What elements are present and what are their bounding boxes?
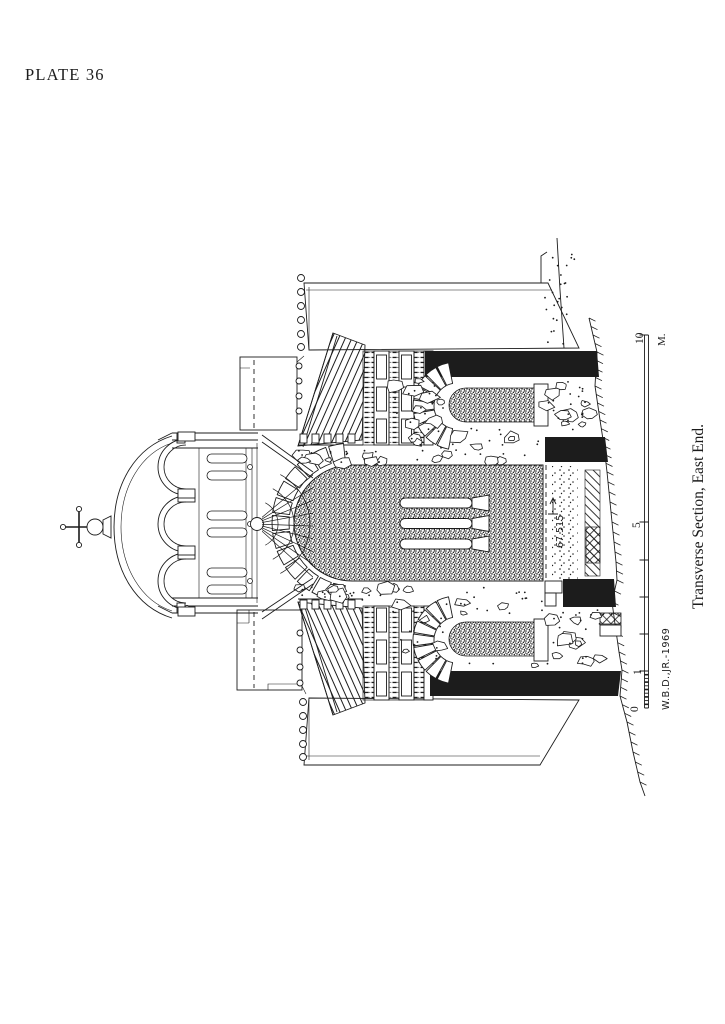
ground-tick	[609, 492, 616, 495]
stipple-dot	[431, 403, 433, 405]
ground-tick	[617, 580, 624, 583]
stipple-dot	[518, 591, 520, 593]
stipple-dot	[500, 434, 502, 436]
stipple-dot	[409, 630, 411, 632]
rubble-stone	[577, 656, 594, 666]
stipple-dot	[311, 452, 313, 454]
drum-window	[207, 528, 247, 537]
drum-cornice-top	[158, 433, 258, 448]
stipple-dot	[311, 586, 313, 588]
scale-label-1: 1	[632, 669, 644, 675]
step-stone	[545, 593, 556, 606]
stipple-dot	[499, 429, 501, 431]
plate-drawing: 10 5 1 0 M. 67.515 W.B.D.,JR.-1969 Trans…	[0, 0, 725, 1024]
stipple-dot	[345, 451, 347, 453]
stipple-dot	[473, 596, 475, 598]
scale-label-0: 0	[629, 706, 641, 712]
rubble-stone	[552, 652, 563, 658]
stipple-dot	[351, 599, 353, 601]
stipple-dot	[547, 341, 549, 343]
stipple-dot	[570, 257, 572, 259]
stipple-dot	[435, 658, 437, 660]
stipple-dot	[567, 413, 569, 415]
stipple-dot	[580, 620, 582, 622]
scale-label-10: 10	[634, 332, 646, 344]
rubble-stone	[432, 455, 443, 463]
rubble-stone	[442, 451, 453, 459]
tile-end-row-north	[298, 275, 305, 351]
stipple-dot	[582, 390, 584, 392]
rubble-stone	[485, 456, 499, 465]
stipple-dot	[436, 655, 438, 657]
side-block-south	[237, 610, 306, 694]
stipple-dot	[558, 298, 560, 300]
stipple-dot	[548, 402, 550, 404]
stipple-dot	[322, 591, 324, 593]
stipple-dot	[476, 429, 478, 431]
ground-tick	[599, 412, 606, 415]
plate-label: PLATE 36	[25, 65, 105, 84]
dome-outline	[114, 436, 172, 618]
stipple-dot	[393, 658, 395, 660]
stipple-dot	[602, 614, 604, 616]
wall-section-north	[425, 351, 599, 377]
stipple-dot	[564, 283, 566, 285]
stipple-dot	[536, 443, 538, 445]
stipple-dot	[553, 330, 555, 332]
stipple-dot	[476, 608, 478, 610]
stipple-dot	[553, 318, 555, 320]
stipple-dot	[569, 643, 571, 645]
stipple-dot	[417, 641, 419, 643]
stipple-dot	[398, 588, 400, 590]
stipple-dot	[436, 647, 438, 649]
step-stone	[545, 581, 562, 593]
ground-tick	[619, 652, 626, 655]
ground-tick	[621, 679, 628, 682]
aisle-roof-north	[298, 333, 365, 447]
stipple-dot	[553, 410, 555, 412]
stipple-dot	[394, 392, 396, 394]
impost-block	[178, 607, 195, 616]
impost-block	[178, 489, 195, 498]
stipple-dot	[525, 597, 527, 599]
crossing-finial-orb	[251, 518, 264, 531]
ground-tick	[618, 643, 625, 646]
rubble-stone	[437, 399, 445, 405]
aisle-window-south	[413, 597, 548, 683]
stipple-dot	[428, 428, 430, 430]
stipple-dot	[396, 601, 398, 603]
stipple-dot	[524, 592, 526, 594]
stipple-dot	[552, 292, 554, 294]
stipple-dot	[575, 614, 577, 616]
stipple-dot	[339, 595, 341, 597]
stipple-dot	[578, 396, 580, 398]
ground-tick	[615, 552, 622, 555]
stipple-dot	[567, 381, 569, 383]
stipple-dot	[302, 589, 304, 591]
finial-rod	[541, 252, 547, 283]
drum-window	[207, 585, 247, 594]
stipple-dot	[418, 658, 420, 660]
stipple-dot	[346, 453, 348, 455]
stipple-dot	[364, 450, 366, 452]
stipple-dot	[363, 459, 365, 461]
rubble-stone	[470, 444, 482, 450]
rubble-stone	[461, 611, 468, 615]
rubble-stone	[498, 603, 509, 610]
rubble-stone	[450, 431, 468, 443]
impost-block	[178, 546, 195, 555]
stipple-dot	[416, 459, 418, 461]
ground-tick	[613, 532, 620, 535]
stipple-dot	[452, 443, 454, 445]
cut-stone-block	[600, 625, 621, 636]
stipple-dot	[349, 593, 351, 595]
window-fill	[449, 622, 534, 656]
stipple-dot	[560, 616, 562, 618]
rubble-stone	[403, 586, 413, 593]
stipple-dot	[470, 428, 472, 430]
stipple-dot	[464, 604, 466, 606]
stipple-dot	[408, 393, 410, 395]
stipple-dot	[561, 307, 563, 309]
stipple-dot	[569, 393, 571, 395]
ground-tick	[617, 571, 624, 574]
stipple-dot	[553, 642, 555, 644]
stipple-dot	[566, 313, 568, 315]
stipple-dot	[551, 331, 553, 333]
stipple-dot	[557, 265, 559, 267]
stipple-dot	[394, 398, 396, 400]
stipple-dot	[524, 454, 526, 456]
signature: W.B.D.,JR.-1969	[661, 628, 672, 710]
scale-unit-label: M.	[656, 333, 668, 346]
drum-window	[207, 471, 247, 480]
stipple-dot	[553, 618, 555, 620]
impost-block	[178, 432, 195, 441]
caption: Transverse Section, East End.	[690, 424, 707, 609]
stipple-dot	[420, 407, 422, 409]
colonnette-base	[248, 579, 253, 584]
elevation-label: 67.515	[555, 515, 566, 548]
drum-arch	[158, 553, 186, 609]
stipple-dot	[298, 450, 300, 452]
stipple-dot	[557, 301, 559, 303]
stipple-dot	[301, 594, 303, 596]
stylobate-south	[563, 579, 616, 607]
stipple-dot	[434, 385, 436, 387]
ground-tick	[606, 463, 613, 466]
rubble-stone	[377, 581, 395, 594]
drum-arch-inner	[164, 502, 186, 546]
plate-page: 10 5 1 0 M. 67.515 W.B.D.,JR.-1969 Trans…	[0, 0, 725, 1024]
stipple-dot	[362, 599, 364, 601]
stipple-dot	[353, 592, 355, 594]
stipple-dot	[597, 609, 599, 611]
rubble-stone	[531, 663, 538, 667]
stipple-dot	[413, 630, 415, 632]
stipple-dot	[435, 395, 437, 397]
ground-tick	[595, 386, 602, 389]
stipple-dot	[446, 603, 448, 605]
ground-tick	[621, 687, 628, 690]
stipple-dot	[611, 613, 613, 615]
stipple-dot	[502, 444, 504, 446]
stipple-dot	[582, 657, 584, 659]
stipple-dot	[562, 343, 564, 345]
stipple-dot	[400, 639, 402, 641]
stipple-dot	[413, 644, 415, 646]
stipple-dot	[483, 587, 485, 589]
stipple-dot	[552, 257, 554, 259]
stipple-dot	[419, 444, 421, 446]
ground-tick	[601, 429, 608, 432]
stipple-dot	[375, 451, 377, 453]
stipple-dot	[547, 663, 549, 665]
stipple-dot	[582, 662, 584, 664]
stipple-dot	[414, 390, 416, 392]
ground-tick	[616, 562, 623, 565]
ground-tick	[614, 542, 621, 545]
stipple-dot	[570, 403, 572, 405]
rubble-stone	[362, 588, 372, 594]
stipple-dot	[572, 429, 574, 431]
drum-arch	[158, 496, 186, 552]
stipple-dot	[424, 413, 426, 415]
ground-tick	[596, 378, 603, 381]
ground-tick	[615, 591, 622, 594]
stipple-dot	[566, 296, 568, 298]
ground-tick	[596, 395, 603, 398]
ground-tick	[607, 472, 614, 475]
stipple-dot	[351, 595, 353, 597]
rubble-stone	[555, 411, 572, 420]
stipple-dot	[429, 393, 431, 395]
apse-windows	[400, 495, 489, 552]
stipple-dot	[330, 452, 332, 454]
stipple-dot	[567, 419, 569, 421]
dome-cross-icon	[60, 506, 111, 547]
stipple-dot	[466, 592, 468, 594]
rubble-stone	[556, 382, 566, 389]
stipple-dot	[553, 304, 555, 306]
finial-orb	[87, 519, 103, 535]
stipple-dot	[549, 279, 551, 281]
stipple-dot	[582, 388, 584, 390]
stipple-dot	[480, 453, 482, 455]
stipple-dot	[522, 598, 524, 600]
stipple-dot	[537, 440, 539, 442]
ground-tick	[597, 352, 604, 355]
ground-tick	[598, 403, 605, 406]
rubble-stone	[593, 655, 607, 663]
stipple-dot	[442, 631, 444, 633]
stipple-dot	[585, 656, 587, 658]
stipple-dot	[599, 623, 601, 625]
stipple-dot	[492, 663, 494, 665]
rubble-stone	[578, 422, 586, 427]
rubble-stone	[544, 614, 559, 626]
scale-subdivisions	[645, 675, 649, 708]
stipple-dot	[440, 618, 442, 620]
stipple-dot	[380, 595, 382, 597]
stipple-dot	[301, 454, 303, 456]
stipple-dot	[559, 627, 561, 629]
stipple-dot	[546, 309, 548, 311]
stipple-dot	[582, 413, 584, 415]
drum-arcade	[158, 432, 253, 616]
ground-tick	[610, 502, 617, 505]
stipple-dot	[516, 592, 518, 594]
stipple-dot	[439, 626, 441, 628]
stipple-dot	[579, 612, 581, 614]
stipple-dot	[324, 593, 326, 595]
stipple-dot	[585, 628, 587, 630]
stipple-dot	[503, 453, 505, 455]
aisle-roof-south	[298, 601, 365, 715]
stipple-dot	[590, 614, 592, 616]
stipple-dot	[489, 440, 491, 442]
stipple-dot	[412, 610, 414, 612]
stipple-dot	[579, 387, 581, 389]
stipple-dot	[422, 450, 424, 452]
stipple-dot	[541, 601, 543, 603]
stipple-dot	[571, 254, 573, 256]
stipple-dot	[464, 453, 466, 455]
window-fill	[449, 388, 534, 422]
stipple-dot	[541, 609, 543, 611]
stipple-dot	[566, 265, 568, 267]
stipple-dot	[556, 319, 558, 321]
ground-tick	[608, 482, 615, 485]
stipple-dot	[562, 612, 564, 614]
stipple-dot	[378, 461, 380, 463]
stipple-dot	[438, 430, 440, 432]
stipple-dot	[560, 274, 562, 276]
dome-group	[60, 432, 263, 618]
ground-tick	[611, 512, 618, 515]
side-block-north	[240, 356, 304, 430]
colonnette-base	[248, 465, 253, 470]
drum-arch-inner	[164, 559, 186, 603]
stipple-dot	[581, 416, 583, 418]
stylobate-north	[545, 437, 608, 462]
stipple-dot	[509, 612, 511, 614]
stipple-dot	[431, 643, 433, 645]
drum-window	[207, 454, 247, 463]
stipple-dot	[584, 401, 586, 403]
stipple-dot	[440, 447, 442, 449]
rubble-stone	[581, 401, 590, 408]
stipple-dot	[486, 610, 488, 612]
drum-window	[207, 511, 247, 520]
ground-tick	[622, 670, 629, 673]
ground-tick	[612, 522, 619, 525]
stipple-dot	[392, 611, 394, 613]
stipple-dot	[410, 421, 412, 423]
stipple-dot	[435, 602, 437, 604]
scale-label-5: 5	[631, 522, 643, 528]
stipple-dot	[340, 461, 342, 463]
stipple-dot	[460, 603, 462, 605]
stipple-dot	[425, 644, 427, 646]
stipple-dot	[442, 407, 444, 409]
stipple-dot	[582, 638, 584, 640]
stipple-dot	[469, 663, 471, 665]
stipple-dot	[324, 596, 326, 598]
rubble-stone	[509, 436, 515, 440]
stipple-dot	[544, 297, 546, 299]
stipple-dot	[455, 449, 457, 451]
rubble-stone	[570, 617, 581, 625]
rubble-stone	[405, 418, 419, 429]
stipple-dot	[558, 417, 560, 419]
wall-section-south	[430, 671, 621, 696]
rubble-stone	[455, 599, 471, 607]
stipple-dot	[560, 283, 562, 285]
stipple-dot	[552, 400, 554, 402]
drum-arch-inner	[164, 445, 186, 489]
stipple-dot	[368, 594, 370, 596]
rubble-stone	[581, 408, 597, 419]
stipple-dot	[396, 412, 398, 414]
stipple-dot	[411, 438, 413, 440]
ground-tick	[600, 420, 607, 423]
drum-window	[207, 568, 247, 577]
floor-block	[586, 527, 600, 563]
ground-tick	[621, 661, 628, 664]
stipple-dot	[573, 258, 575, 260]
